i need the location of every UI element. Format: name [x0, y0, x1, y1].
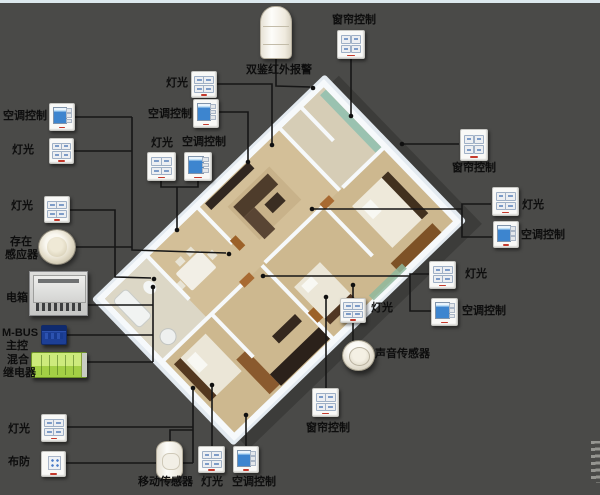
light-switch-top-left-k-icon	[61, 143, 71, 151]
ac-switch-right-1-label: 空调控制	[521, 229, 565, 241]
ac-switch-bottom-brand-icon	[243, 469, 250, 471]
light-switch-mid-k-icon	[352, 311, 362, 319]
ac-switch-right-1-kb-icon	[510, 226, 516, 231]
hybrid-relay-label-2: 继电器	[3, 367, 36, 379]
infrared-alarm	[260, 6, 292, 59]
electric-box-label: 电箱	[6, 292, 28, 304]
ac-switch-top-left-kb-icon	[66, 119, 72, 124]
mbus-controller	[41, 325, 67, 345]
ac-switch-bottom-kb-icon	[250, 461, 256, 466]
electric-box	[29, 271, 88, 316]
light-switch-bottom-left	[41, 414, 67, 442]
curtain-switch-bottom-k-icon	[325, 393, 336, 401]
light-switch-top-1-label: 灯光	[166, 77, 188, 89]
curtain-switch-top-right-k-icon	[464, 145, 475, 154]
ac-switch-top-left-label: 空调控制	[3, 110, 47, 122]
light-switch-top-left-brand-icon	[58, 160, 64, 162]
motion-sensor-label: 移动传感器	[138, 476, 193, 488]
light-switch-mid-label: 灯光	[371, 302, 393, 314]
light-switch-right-2-brand-icon	[439, 285, 446, 287]
ac-switch-bottom-kb-icon	[250, 456, 256, 461]
electric-box-mods-icon	[36, 303, 82, 311]
light-switch-right-1-k-icon	[505, 192, 516, 200]
ac-switch-right-1-kb-icon	[510, 236, 516, 241]
ac-switch-right-2-kb-icon	[449, 308, 456, 313]
ac-switch-right-1-brand-icon	[503, 244, 510, 246]
ac-switch-top-1-label: 空调控制	[148, 108, 192, 120]
light-switch-right-2	[429, 261, 456, 289]
ac-switch-right-2	[431, 298, 458, 326]
ac-switch-top-2-label: 空调控制	[182, 136, 226, 148]
ac-switch-top-2-brand-icon	[194, 177, 201, 179]
light-switch-top-1-brand-icon	[201, 94, 208, 96]
ac-switch-top-2-kb-icon	[202, 168, 209, 173]
ac-switch-right-2-brand-icon	[441, 322, 448, 324]
arm-panel-pad-icon	[48, 456, 62, 470]
ac-switch-right-2-kb-icon	[449, 314, 456, 319]
light-switch-top-2-brand-icon	[158, 177, 166, 179]
light-switch-bottom-k-icon	[211, 460, 222, 468]
ac-switch-right-2-label: 空调控制	[462, 305, 506, 317]
curtain-switch-top-brand-icon	[347, 55, 354, 57]
light-switch-top-2	[147, 152, 176, 181]
curtain-switch-bottom	[312, 388, 339, 417]
light-switch-top-1	[191, 71, 217, 98]
light-switch-top-2-label: 灯光	[151, 137, 173, 149]
watermark	[591, 441, 600, 483]
presence-sensor-in-icon	[47, 237, 67, 256]
light-switch-bottom-left-k-icon	[53, 428, 63, 436]
light-switch-top-left	[49, 138, 74, 164]
curtain-switch-top-k-icon	[341, 45, 352, 53]
curtain-switch-top-right-label: 窗帘控制	[452, 162, 496, 174]
arm-panel-label: 布防	[8, 456, 30, 468]
ac-switch-top-1-kb-icon	[210, 115, 216, 120]
light-switch-right-1-label: 灯光	[522, 199, 544, 211]
hybrid-relay-label: 混合	[7, 354, 29, 366]
mbus-controller-cap-icon	[42, 326, 66, 331]
arm-panel-brand-icon	[50, 473, 56, 475]
hybrid-relay-cap2-icon	[81, 353, 87, 377]
arm-panel	[41, 451, 66, 477]
presence-sensor	[38, 229, 76, 265]
curtain-switch-bottom-label: 窗帘控制	[306, 422, 350, 434]
hybrid-relay-seg-icon	[34, 355, 84, 375]
curtain-switch-bottom-brand-icon	[322, 413, 329, 415]
mbus-controller-label-2: 主控	[6, 340, 28, 352]
hybrid-relay	[31, 352, 87, 378]
light-switch-top-left-k-icon	[61, 151, 71, 159]
presence-sensor-label-2: 感应器	[5, 249, 38, 261]
presence-sensor-label: 存在	[10, 236, 32, 248]
diagram-canvas: 空调控制灯光灯光存在感应器电箱M-BUS主控混合继电器灯光布防移动传感器灯光空调…	[0, 0, 600, 495]
ac-switch-right-2-kb-icon	[449, 303, 456, 308]
light-switch-bottom-left-k-icon	[53, 419, 63, 427]
sound-sensor-label: 声音传感器	[375, 348, 430, 360]
motion-sensor-lens-icon	[162, 453, 180, 470]
curtain-switch-top-right-k-icon	[464, 135, 475, 144]
ac-switch-top-left-kb-icon	[66, 108, 72, 113]
ac-switch-top-left-brand-icon	[59, 127, 66, 129]
light-switch-right-2-label: 灯光	[465, 268, 487, 280]
light-switch-bottom	[198, 446, 225, 473]
ac-switch-top-1-kb-icon	[210, 104, 216, 109]
ac-switch-right-1	[493, 221, 519, 248]
light-switch-mid	[340, 298, 366, 323]
infrared-alarm-label: 双鉴红外报警	[246, 64, 312, 76]
ac-switch-top-1	[193, 99, 219, 128]
light-switch-bottom-left-brand-icon	[51, 438, 58, 440]
ac-switch-top-2-kb-icon	[202, 157, 209, 162]
light-switch-left-brand-icon	[54, 219, 61, 221]
light-switch-right-2-k-icon	[442, 266, 453, 274]
ac-switch-right-1-kb-icon	[510, 231, 516, 236]
curtain-switch-bottom-k-icon	[325, 403, 336, 411]
ac-switch-top-2	[184, 152, 212, 181]
light-switch-right-2-k-icon	[442, 275, 453, 283]
ac-switch-top-1-brand-icon	[203, 124, 210, 126]
ac-switch-bottom	[233, 446, 259, 473]
curtain-switch-top-right-k-icon	[474, 145, 485, 154]
infrared-alarm-seam-icon	[263, 26, 289, 27]
device-layer: 空调控制灯光灯光存在感应器电箱M-BUS主控混合继电器灯光布防移动传感器灯光空调…	[0, 0, 600, 495]
light-switch-right-1-k-icon	[505, 202, 516, 210]
ac-switch-top-left-kb-icon	[66, 113, 72, 118]
motion-sensor	[156, 441, 183, 479]
light-switch-left-k-icon	[56, 201, 66, 209]
light-switch-bottom-brand-icon	[208, 469, 215, 471]
light-switch-bottom-left-label: 灯光	[8, 423, 30, 435]
curtain-switch-top-right-brand-icon	[470, 156, 477, 158]
sound-sensor-ring-icon	[349, 347, 370, 366]
mbus-controller-st-icon	[45, 333, 63, 339]
curtain-switch-top-k-icon	[341, 35, 352, 43]
mbus-controller-label: M-BUS	[2, 327, 38, 339]
ac-switch-top-left	[49, 103, 75, 131]
light-switch-top-2-k-icon	[161, 167, 172, 175]
electric-box-slot-icon	[38, 279, 79, 283]
ac-switch-top-2-kb-icon	[202, 163, 209, 168]
light-switch-left-label: 灯光	[11, 200, 33, 212]
curtain-switch-top-k-icon	[351, 35, 362, 43]
ac-switch-bottom-kb-icon	[250, 451, 256, 456]
light-switch-mid-brand-icon	[350, 319, 357, 321]
light-switch-top-left-label: 灯光	[12, 144, 34, 156]
curtain-switch-top	[337, 30, 365, 59]
ac-switch-bottom-label: 空调控制	[232, 476, 276, 488]
light-switch-bottom-label: 灯光	[201, 476, 223, 488]
infrared-alarm-seam-icon	[263, 44, 289, 45]
curtain-switch-top-label: 窗帘控制	[332, 14, 376, 26]
light-switch-mid-k-icon	[352, 302, 362, 310]
curtain-switch-top-right-k-icon	[474, 135, 485, 144]
light-switch-left	[44, 196, 70, 223]
light-switch-top-1-k-icon	[203, 76, 213, 84]
curtain-switch-top-k-icon	[351, 45, 362, 53]
light-switch-top-2-k-icon	[161, 157, 172, 165]
light-switch-bottom-k-icon	[211, 451, 222, 459]
ac-switch-top-1-kb-icon	[210, 110, 216, 115]
curtain-switch-top-right	[460, 129, 488, 161]
light-switch-left-k-icon	[56, 210, 66, 218]
light-switch-top-1-k-icon	[203, 85, 213, 93]
light-switch-right-1-brand-icon	[502, 212, 509, 214]
light-switch-right-1	[492, 187, 519, 216]
sound-sensor	[342, 340, 375, 371]
